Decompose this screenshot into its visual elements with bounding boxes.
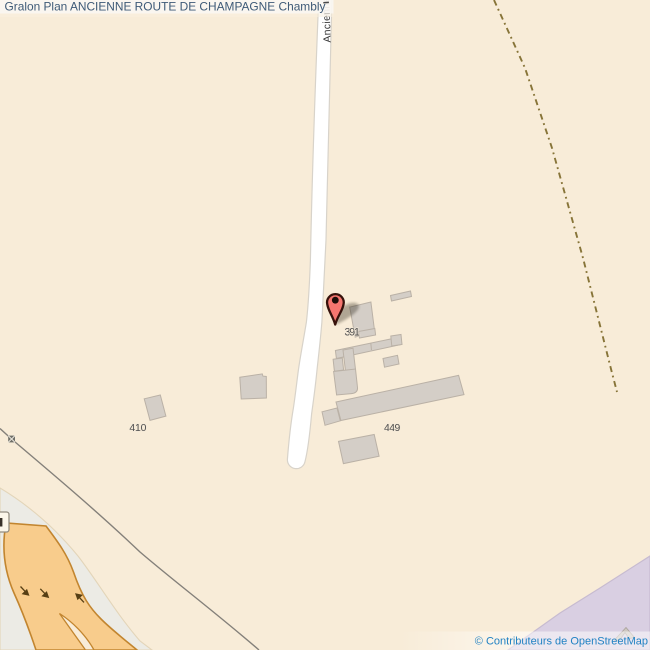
svg-text:391: 391 [345, 326, 360, 338]
svg-text:© Contributeurs de OpenStreetM: © Contributeurs de OpenStreetMap [475, 635, 648, 647]
svg-text:Gralon Plan ANCIENNE ROUTE DE: Gralon Plan ANCIENNE ROUTE DE CHAMPAGNE … [5, 0, 326, 13]
svg-text:449: 449 [384, 423, 401, 434]
svg-text:410: 410 [129, 423, 146, 434]
